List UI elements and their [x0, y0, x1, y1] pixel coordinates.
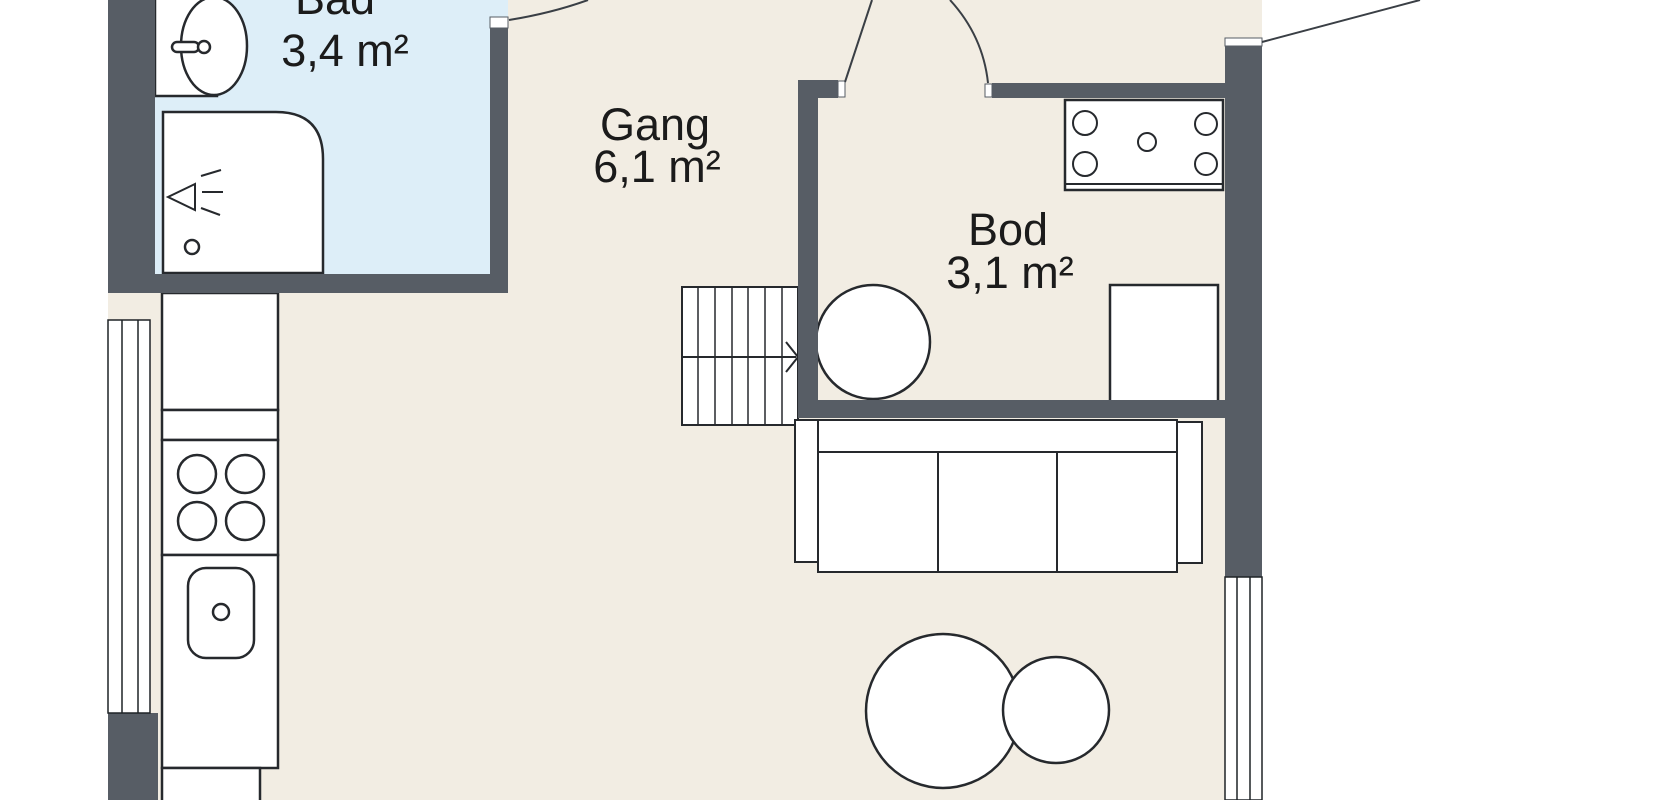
cooktop-burner: [1073, 152, 1097, 176]
stove-burner: [226, 455, 264, 493]
window-right: [1225, 577, 1262, 800]
wall-right: [1225, 46, 1262, 577]
room-area-bad: 3,4 m²: [281, 25, 409, 76]
shower-drain: [185, 240, 199, 254]
floor-plan: Bad 3,4 m² Gang 6,1 m² Bod 3,1 m²: [0, 0, 1670, 800]
cooktop-burner: [1195, 113, 1217, 135]
sofa-backrest: [818, 420, 1177, 452]
room-area-gang: 6,1 m²: [593, 141, 721, 192]
room-label-bad: Bad: [295, 0, 375, 24]
stove-burner: [226, 502, 264, 540]
threshold-exterior-door: [1225, 38, 1262, 46]
wall-left-upper: [108, 0, 155, 293]
stairs: [682, 287, 798, 425]
cooktop-burner: [1195, 153, 1217, 175]
sofa: [795, 420, 1202, 572]
kitchen-stove: [162, 440, 278, 555]
threshold-entry-door-left: [838, 81, 845, 97]
stove-burner: [178, 502, 216, 540]
cooktop-unit: [1065, 100, 1223, 190]
wall-bathroom-bottom: [108, 274, 508, 293]
threshold-bathroom-door: [490, 17, 508, 28]
wall-bathroom-right: [490, 28, 508, 293]
kitchen-sink-drain: [213, 604, 229, 620]
wall-bod-top-right: [992, 83, 1262, 98]
round-table-small: [1003, 657, 1109, 763]
water-heater: [816, 285, 930, 399]
sofa-armrest-right: [1177, 422, 1202, 563]
bod-cabinet: [1110, 285, 1218, 402]
wall-bod-left: [798, 80, 818, 418]
floor-plan-canvas: Bad 3,4 m² Gang 6,1 m² Bod 3,1 m²: [0, 0, 1670, 800]
kitchen-cabinet-bottom: [162, 768, 260, 800]
kitchen-cabinet-top: [162, 293, 278, 410]
threshold-entry-door-right: [985, 84, 992, 97]
sofa-armrest-left: [795, 420, 818, 562]
cooktop-burner: [1073, 111, 1097, 135]
wall-bod-bottom: [798, 400, 1225, 418]
round-table-large: [866, 634, 1020, 788]
sofa-seat: [818, 452, 1177, 572]
stove-burner: [178, 455, 216, 493]
window-left: [108, 320, 150, 713]
wall-left-lower: [108, 713, 158, 800]
kitchen-worktop-strip: [162, 410, 278, 440]
room-area-bod: 3,1 m²: [946, 247, 1074, 298]
bathroom-sink-drain: [198, 41, 210, 53]
bathroom-sink-faucet: [172, 42, 199, 52]
cooktop-knob: [1138, 133, 1156, 151]
